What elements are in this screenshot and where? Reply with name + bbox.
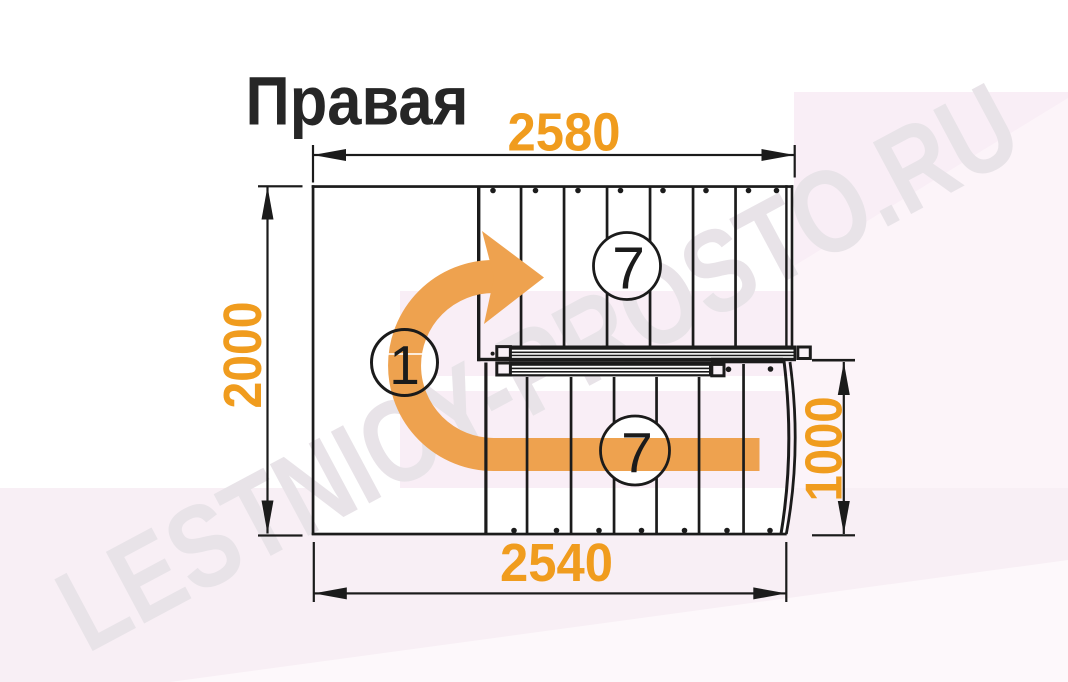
svg-text:2000: 2000 <box>213 302 273 409</box>
svg-text:7: 7 <box>612 236 645 302</box>
svg-text:1: 1 <box>389 334 420 396</box>
svg-text:Правая: Правая <box>246 63 469 140</box>
svg-text:1000: 1000 <box>796 397 854 502</box>
svg-text:2580: 2580 <box>508 103 621 163</box>
svg-text:7: 7 <box>621 422 653 486</box>
svg-text:2540: 2540 <box>500 533 613 593</box>
